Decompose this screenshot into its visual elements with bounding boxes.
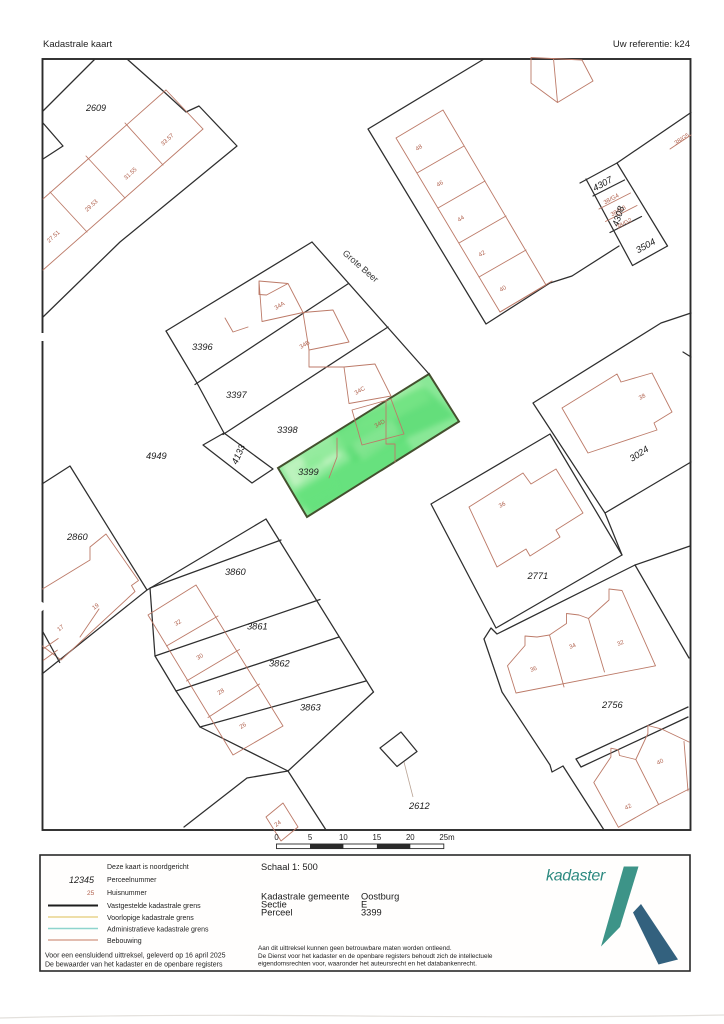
svg-text:3860: 3860 xyxy=(225,567,247,577)
svg-text:2609: 2609 xyxy=(85,103,106,113)
svg-text:44: 44 xyxy=(457,215,466,224)
svg-text:36: 36 xyxy=(530,666,539,674)
svg-text:Grote Beer: Grote Beer xyxy=(341,248,381,284)
svg-text:27.51: 27.51 xyxy=(46,230,62,245)
svg-text:34B: 34B xyxy=(299,340,311,351)
svg-text:Voorlopige kadastrale grens: Voorlopige kadastrale grens xyxy=(107,915,194,922)
svg-text:20: 20 xyxy=(406,833,415,842)
svg-text:Uw referentie: k24: Uw referentie: k24 xyxy=(613,39,690,50)
svg-text:30: 30 xyxy=(196,653,205,662)
svg-text:Kadastrale kaart: Kadastrale kaart xyxy=(43,39,113,50)
svg-text:12345: 12345 xyxy=(69,875,95,885)
svg-text:36: 36 xyxy=(498,501,507,510)
svg-text:5: 5 xyxy=(308,833,313,842)
svg-text:10: 10 xyxy=(339,833,348,842)
svg-text:3398: 3398 xyxy=(277,425,299,435)
svg-text:31.55: 31.55 xyxy=(123,167,139,182)
svg-text:0: 0 xyxy=(274,833,279,842)
svg-text:4133: 4133 xyxy=(230,442,248,466)
svg-text:Vastgestelde kadastrale grens: Vastgestelde kadastrale grens xyxy=(107,903,201,910)
svg-text:34C: 34C xyxy=(354,386,367,397)
svg-text:2612: 2612 xyxy=(408,801,431,811)
svg-text:40: 40 xyxy=(499,285,508,294)
svg-text:3397: 3397 xyxy=(226,390,248,400)
svg-text:28: 28 xyxy=(217,688,226,697)
svg-text:Huisnummer: Huisnummer xyxy=(107,890,147,897)
svg-text:eigendomsrechten voor, waarond: eigendomsrechten voor, waaronder het aut… xyxy=(258,960,477,967)
svg-text:De bewaarder van het kadaster: De bewaarder van het kadaster en de open… xyxy=(45,962,223,969)
svg-text:15: 15 xyxy=(373,833,382,842)
svg-text:Voor een eensluidend uittrekse: Voor een eensluidend uittreksel, gelever… xyxy=(45,953,226,960)
svg-text:33.57: 33.57 xyxy=(160,133,176,148)
svg-text:2771: 2771 xyxy=(527,571,549,581)
svg-text:42: 42 xyxy=(624,803,633,812)
svg-text:De Dienst voor het kadaster en: De Dienst voor het kadaster en de openba… xyxy=(258,953,493,960)
svg-text:19: 19 xyxy=(92,602,101,611)
svg-text:25: 25 xyxy=(87,890,95,897)
svg-text:40: 40 xyxy=(656,758,665,767)
svg-text:3024: 3024 xyxy=(628,444,651,464)
svg-text:3396: 3396 xyxy=(192,342,214,352)
svg-text:4949: 4949 xyxy=(146,451,167,461)
svg-text:Aan dit uittreksel kunnen geen: Aan dit uittreksel kunnen geen betrouwba… xyxy=(258,945,452,952)
svg-text:46: 46 xyxy=(436,180,445,189)
svg-text:kadaster: kadaster xyxy=(546,868,606,885)
svg-text:3504: 3504 xyxy=(634,236,657,255)
svg-text:2756: 2756 xyxy=(601,700,624,710)
svg-text:38: 38 xyxy=(638,393,647,402)
svg-text:Schaal 1: 500: Schaal 1: 500 xyxy=(261,862,318,872)
svg-text:3399: 3399 xyxy=(361,908,382,918)
svg-text:32: 32 xyxy=(174,619,183,628)
svg-text:24: 24 xyxy=(274,820,283,829)
svg-text:42: 42 xyxy=(478,250,487,259)
svg-text:Perceelnummer: Perceelnummer xyxy=(107,877,157,884)
svg-text:29.53: 29.53 xyxy=(84,199,100,214)
svg-text:Deze kaart is noordgericht: Deze kaart is noordgericht xyxy=(107,864,189,871)
svg-text:Administratieve kadastrale gre: Administratieve kadastrale grens xyxy=(107,927,209,934)
svg-text:3863: 3863 xyxy=(300,703,322,713)
svg-text:3862: 3862 xyxy=(269,659,291,669)
svg-text:34A: 34A xyxy=(274,301,286,312)
svg-text:2860: 2860 xyxy=(66,532,89,542)
svg-text:48: 48 xyxy=(415,144,424,153)
svg-text:3861: 3861 xyxy=(247,622,268,632)
svg-text:Perceel: Perceel xyxy=(261,908,293,918)
svg-text:26: 26 xyxy=(239,722,248,731)
svg-text:3399: 3399 xyxy=(298,467,319,477)
svg-text:17: 17 xyxy=(57,624,66,633)
svg-text:Bebouwing: Bebouwing xyxy=(107,938,142,945)
svg-text:32: 32 xyxy=(617,640,626,648)
svg-text:25m: 25m xyxy=(439,833,454,842)
svg-text:34: 34 xyxy=(569,643,578,651)
